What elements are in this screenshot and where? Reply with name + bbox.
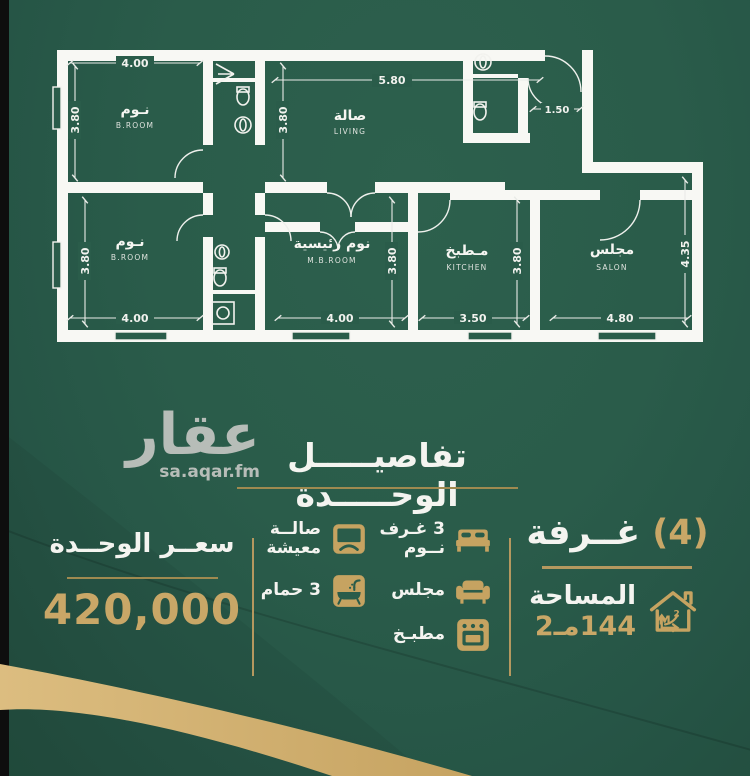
room-label-living-en: LIVING: [334, 127, 366, 136]
dim-kitchen-depth: 3.80: [511, 247, 524, 274]
dim-bedroom1-width: 4.00: [121, 57, 148, 70]
price-underline: [67, 577, 218, 579]
area-label: المساحة: [529, 582, 636, 611]
dim-master-width: 4.00: [326, 312, 353, 325]
room-label-kitchen-en: KITCHEN: [447, 263, 488, 272]
outer-walls: [57, 50, 703, 342]
dim-salon-width: 4.80: [606, 312, 633, 325]
rooms-count-label: غــرفة: [526, 513, 640, 553]
price-label: سعــر الوحــدة: [32, 529, 252, 559]
feature-kitchen: مطبـخ: [393, 616, 492, 654]
room-label-bedroom1-ar: نـوم: [120, 102, 149, 118]
aqar-logo: عقار: [104, 406, 260, 466]
dim-entrybath-width: 1.50: [545, 105, 570, 116]
room-label-master-en: M.B.ROOM: [307, 256, 356, 265]
house-area-icon: M 2: [646, 585, 700, 639]
room-label-master-ar: نوم رئيسية: [294, 236, 371, 252]
left-black-strip: [0, 0, 9, 776]
column-divider-right: [509, 538, 511, 676]
bathtub-icon: [330, 572, 368, 610]
room-label-bedroom1-en: B.ROOM: [116, 121, 154, 130]
feature-label: مجلس: [391, 581, 445, 600]
svg-text:2: 2: [673, 609, 679, 619]
bed-icon: [454, 520, 492, 558]
flyer-canvas: 4.00 3.80 5.80 3.80 1.50 4.00 3.80 4.00 …: [0, 0, 750, 776]
dim-bedroom1-depth: 3.80: [69, 106, 82, 133]
area-texts: المساحة 144مـ2: [529, 582, 636, 642]
dim-living-width: 5.80: [378, 74, 405, 87]
room-label-salon-ar: مجلس: [590, 242, 634, 258]
dim-master-depth: 3.80: [386, 247, 399, 274]
rooms-count-value: (4): [652, 513, 708, 553]
column-divider-left: [252, 538, 254, 676]
price-value: 420,000: [32, 585, 252, 634]
sofa-icon: [454, 572, 492, 610]
svg-text:M: M: [658, 613, 670, 627]
feature-bathrooms: 3 حمام: [261, 572, 368, 610]
feature-label: 3 حمام: [261, 581, 321, 600]
oven-icon: [454, 616, 492, 654]
area-value: 144مـ2: [529, 611, 636, 642]
room-label-bedroom2-ar: نـوم: [115, 234, 144, 250]
area-block: M 2 المساحة 144مـ2: [529, 582, 700, 642]
room-label-salon-en: SALON: [596, 263, 627, 272]
feature-label: مطبـخ: [393, 625, 445, 644]
section-title: تفاصيـــــل الوحـــــدة: [233, 436, 521, 514]
feature-majlis: مجلس: [391, 572, 492, 610]
dim-kitchen-width: 3.50: [459, 312, 486, 325]
feature-label: صالــةمعيشة: [266, 520, 321, 558]
washer-icon: [212, 302, 234, 324]
room-label-living-ar: صالة: [334, 108, 367, 124]
title-underline: [237, 487, 518, 489]
brand-logo-block: عقار sa.aqar.fm: [104, 406, 260, 482]
room-label-bedroom2-en: B.ROOM: [111, 253, 149, 262]
tv-icon: [330, 520, 368, 558]
dim-bedroom2-width: 4.00: [121, 312, 148, 325]
dim-salon-depth: 4.35: [679, 240, 692, 267]
feature-bedrooms: 3 غـرفنــوم: [379, 520, 492, 558]
inner-walls: [57, 61, 692, 330]
rooms-underline: [542, 566, 692, 569]
floor-plan: 4.00 3.80 5.80 3.80 1.50 4.00 3.80 4.00 …: [40, 30, 730, 350]
feature-label: 3 غـرفنــوم: [379, 520, 445, 558]
dim-bedroom2-depth: 3.80: [79, 247, 92, 274]
feature-living: صالــةمعيشة: [266, 520, 368, 558]
room-label-kitchen-ar: مـطبخ: [446, 243, 489, 259]
rooms-count-line: (4) غــرفة: [500, 513, 735, 553]
dim-living-depth: 3.80: [277, 106, 290, 133]
